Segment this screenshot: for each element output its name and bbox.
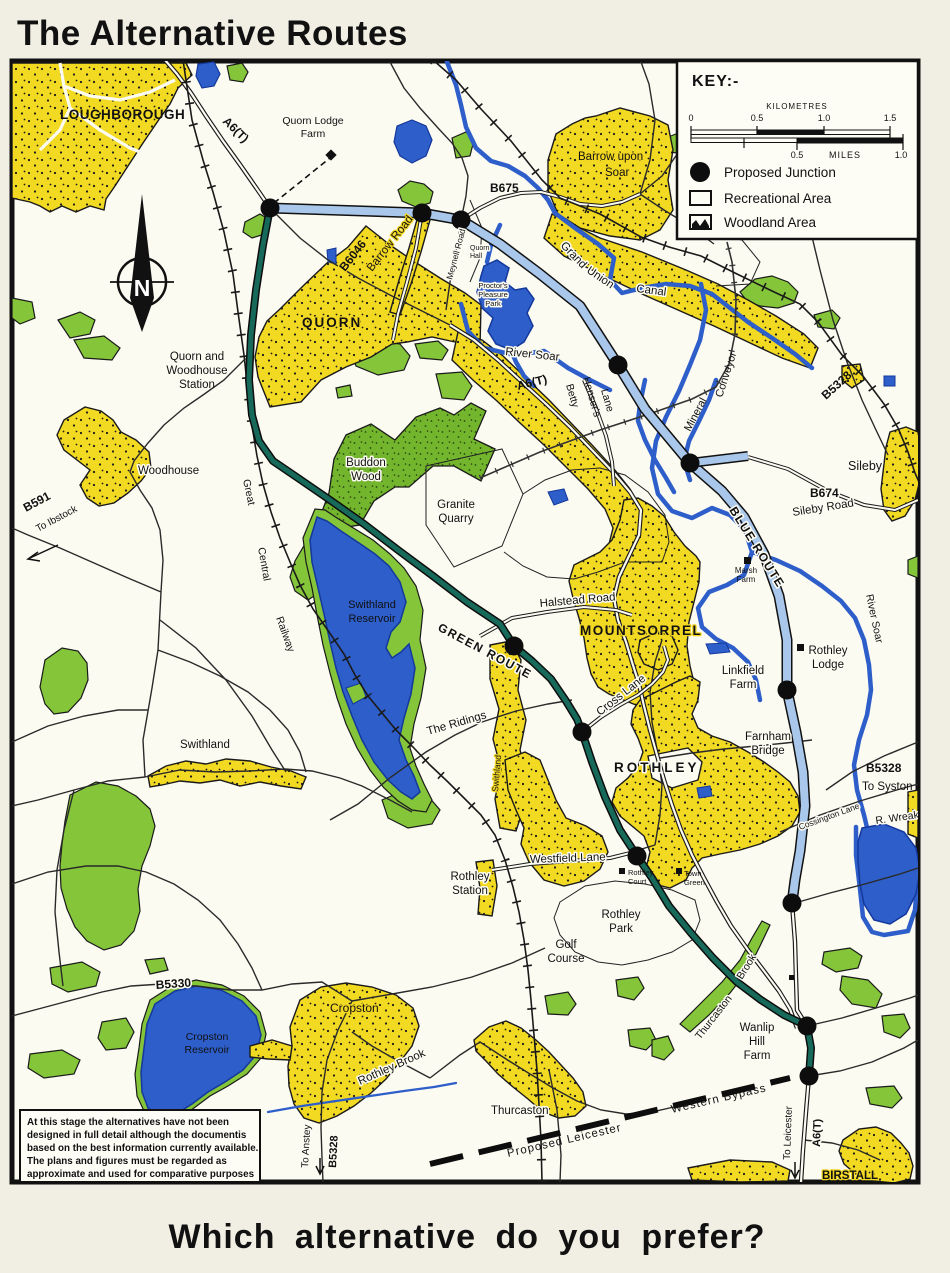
svg-text:Rothley: Rothley bbox=[628, 868, 654, 877]
svg-text:Woodhouse: Woodhouse bbox=[138, 465, 199, 477]
svg-text:At this stage the alternatives: At this stage the alternatives have not … bbox=[27, 1117, 229, 1128]
svg-text:B5328: B5328 bbox=[327, 1135, 341, 1168]
svg-text:Farm: Farm bbox=[737, 575, 756, 584]
svg-text:Barrow upon: Barrow upon bbox=[578, 151, 643, 163]
svg-text:LOUGHBOROUGH: LOUGHBOROUGH bbox=[60, 107, 185, 122]
svg-text:0: 0 bbox=[688, 113, 693, 123]
svg-text:Quarry: Quarry bbox=[438, 513, 473, 525]
svg-text:Golf: Golf bbox=[555, 939, 577, 951]
svg-text:Recreational Area: Recreational Area bbox=[724, 191, 832, 206]
svg-text:Cropston: Cropston bbox=[330, 1001, 379, 1015]
svg-text:BIRSTALL: BIRSTALL bbox=[822, 1170, 878, 1182]
svg-text:Pleasure: Pleasure bbox=[478, 290, 508, 299]
svg-text:1.0: 1.0 bbox=[895, 150, 908, 160]
svg-text:Woodhouse: Woodhouse bbox=[166, 365, 227, 377]
svg-text:The Alternative Routes: The Alternative Routes bbox=[17, 14, 408, 53]
svg-text:Sileby: Sileby bbox=[848, 459, 883, 473]
svg-text:Proposed Junction: Proposed Junction bbox=[724, 165, 836, 180]
svg-text:B675: B675 bbox=[490, 181, 519, 195]
svg-text:To Syston: To Syston bbox=[862, 781, 913, 793]
svg-text:The plans and figures must be: The plans and figures must be regarded a… bbox=[27, 1156, 227, 1167]
svg-text:Hill: Hill bbox=[749, 1036, 765, 1048]
svg-text:KEY:-: KEY:- bbox=[692, 73, 739, 90]
svg-text:MILES: MILES bbox=[829, 150, 861, 160]
svg-text:Bridge: Bridge bbox=[751, 745, 784, 757]
svg-text:Rothley: Rothley bbox=[451, 871, 490, 883]
svg-text:Quorn Lodge: Quorn Lodge bbox=[282, 115, 343, 127]
svg-text:Course: Course bbox=[547, 953, 584, 965]
svg-text:B5328: B5328 bbox=[866, 761, 902, 775]
svg-text:designed in full detail althou: designed in full detail although the doc… bbox=[27, 1130, 247, 1141]
svg-text:Station: Station bbox=[452, 885, 488, 897]
svg-text:Wanlip: Wanlip bbox=[740, 1022, 775, 1034]
svg-text:MOUNTSORREL: MOUNTSORREL bbox=[580, 623, 702, 638]
svg-text:Green: Green bbox=[684, 878, 705, 887]
svg-text:Marsh: Marsh bbox=[735, 566, 757, 575]
svg-text:1.5: 1.5 bbox=[884, 113, 897, 123]
svg-text:Thurcaston: Thurcaston bbox=[491, 1105, 549, 1117]
svg-text:Park: Park bbox=[485, 299, 501, 308]
svg-text:Buddon: Buddon bbox=[346, 457, 386, 469]
svg-text:Reservoir: Reservoir bbox=[348, 613, 395, 625]
svg-text:Rothley: Rothley bbox=[602, 909, 641, 921]
svg-text:Hall: Hall bbox=[470, 253, 483, 260]
svg-text:KILOMETRES: KILOMETRES bbox=[766, 102, 828, 111]
svg-text:Woodland Area: Woodland Area bbox=[724, 215, 817, 230]
svg-text:QUORN: QUORN bbox=[302, 315, 362, 330]
svg-text:Quorn and: Quorn and bbox=[170, 351, 224, 363]
svg-text:0.5: 0.5 bbox=[791, 150, 804, 160]
svg-text:N: N bbox=[134, 275, 151, 301]
svg-text:Station: Station bbox=[179, 379, 215, 391]
svg-text:Farm: Farm bbox=[730, 679, 757, 691]
svg-text:Swithland: Swithland bbox=[180, 739, 230, 751]
svg-text:Granite: Granite bbox=[437, 499, 475, 511]
svg-text:Park: Park bbox=[609, 923, 633, 935]
svg-text:1.0: 1.0 bbox=[818, 113, 831, 123]
svg-text:B674: B674 bbox=[810, 486, 839, 500]
svg-text:Farm: Farm bbox=[301, 128, 326, 140]
svg-text:Quorn: Quorn bbox=[470, 245, 490, 252]
svg-text:Linkfield: Linkfield bbox=[722, 665, 764, 677]
svg-text:based on the best information: based on the best information currently … bbox=[27, 1143, 259, 1154]
svg-text:0.5: 0.5 bbox=[751, 113, 764, 123]
svg-text:Proctor's: Proctor's bbox=[478, 281, 508, 290]
svg-text:Lodge: Lodge bbox=[812, 659, 844, 671]
svg-text:Soar: Soar bbox=[605, 167, 629, 179]
svg-text:To Leicester: To Leicester bbox=[782, 1105, 795, 1160]
svg-text:Swithland: Swithland bbox=[348, 599, 396, 611]
svg-text:Rothley: Rothley bbox=[809, 645, 848, 657]
svg-text:Farm: Farm bbox=[744, 1050, 771, 1062]
svg-text:Wood: Wood bbox=[351, 471, 381, 483]
svg-text:Court: Court bbox=[628, 877, 647, 886]
svg-text:B5330: B5330 bbox=[155, 976, 192, 992]
svg-text:Cropston: Cropston bbox=[186, 1031, 229, 1043]
svg-text:To Anstey: To Anstey bbox=[300, 1124, 313, 1168]
svg-text:approximate and used for compa: approximate and used for comparative pur… bbox=[27, 1169, 255, 1180]
svg-text:Farnham: Farnham bbox=[745, 731, 791, 743]
svg-text:ROTHLEY: ROTHLEY bbox=[614, 760, 700, 775]
svg-text:Which alternative do you prefe: Which alternative do you prefer? bbox=[169, 1218, 766, 1256]
svg-text:Reservoir: Reservoir bbox=[185, 1044, 230, 1056]
svg-text:A6(T): A6(T) bbox=[811, 1118, 824, 1147]
svg-text:Town: Town bbox=[684, 869, 702, 878]
